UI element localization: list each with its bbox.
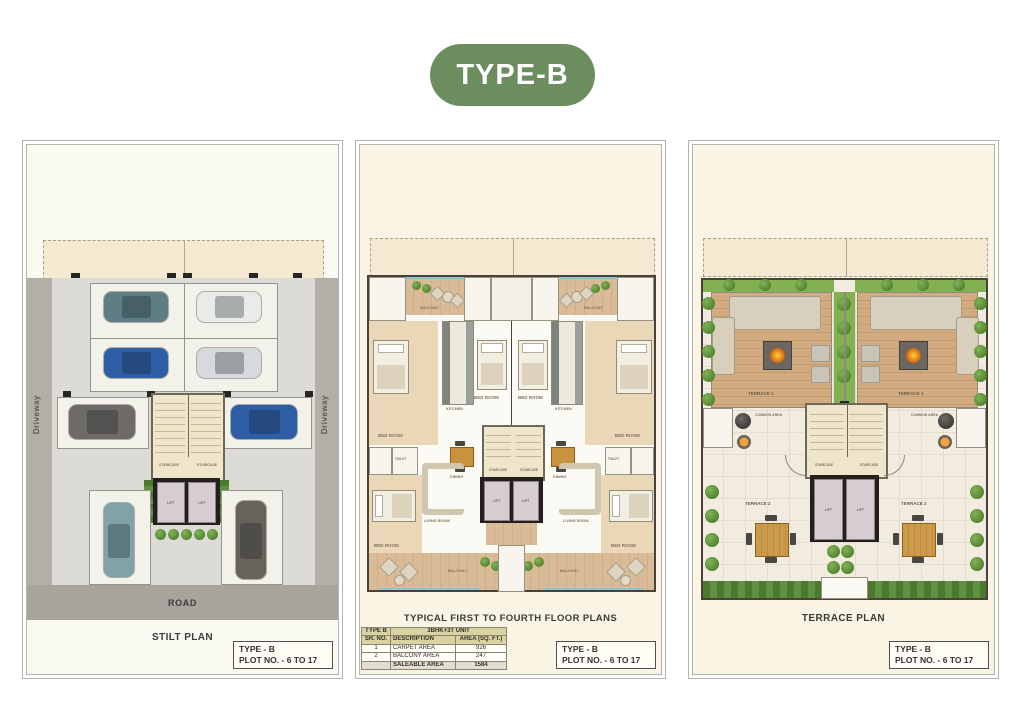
area-table-unit: 3BHK+3T UNIT [391,627,507,636]
sofa-set [422,463,464,515]
bbq-grill [735,413,751,429]
bush [702,297,715,310]
cell-sr: 2 [362,653,391,662]
table-total-row: SALEABLE AREA 1584 [362,661,507,670]
car [231,405,297,439]
common-area-label: COMMON AREA [911,413,938,417]
stair-divider [847,405,848,457]
bush [974,297,987,310]
bush [705,533,719,547]
toilet-box [605,447,631,475]
balcony-label: BALCONY [584,306,603,310]
seat-cube [811,366,830,383]
chair [937,533,943,545]
bush [168,529,179,540]
bush [705,509,719,523]
bed [609,490,653,522]
outdoor-dining-table [755,523,789,557]
area-table-type: TYPE B [362,627,391,636]
seat-cube [811,345,830,362]
bedroom-label: BED ROOM [378,433,403,438]
bush [841,561,854,574]
stair-flight [486,429,511,463]
entry-lobby [491,277,532,321]
entry-walkway [498,545,525,592]
staircase-label: STAIRCASE [815,463,833,467]
balcony-label: BALCONY [420,306,439,310]
hedge [703,581,821,598]
bush [759,279,771,291]
corner-box [703,408,733,448]
title-block-plot: PLOT NO. - 6 TO 17 [239,655,327,666]
setback-band [370,238,655,277]
bush [155,529,166,540]
col-area: AREA (SQ. FT.) [456,636,507,645]
terrace-plan-panel: TERRACE 1 TERRACE 1 [688,140,999,679]
living-label: LIVING ROOM [563,519,589,523]
kitchen [551,321,583,405]
col-desc: DESCRIPTION [391,636,456,645]
bush [702,393,715,406]
area-table-columns-row: SR. NO. DESCRIPTION AREA (SQ. FT.) [362,636,507,645]
bush [974,393,987,406]
floor-plan-sheet: BALCONY BALCONY BED ROOM BED ROOM KITCHE… [359,144,662,675]
chair [893,533,899,545]
car [197,292,261,322]
lift: LIFT [814,479,843,540]
bedroom-label: BED ROOM [611,543,636,548]
car [104,503,134,577]
car [104,348,168,378]
cell-area: 247 [456,653,507,662]
bed [518,340,548,390]
toilet-box [392,447,418,475]
sofa-set [559,463,601,515]
driveway-left-label: Driveway [32,395,41,434]
bush [702,345,715,358]
kitchen [442,321,474,405]
title-block: TYPE - B PLOT NO. - 6 TO 17 [233,641,333,669]
lift-lobby-balcony [486,523,537,545]
terrace2-label: TERRACE 2 [745,501,771,506]
column-tick [305,391,313,397]
car [69,405,135,439]
living-label: LIVING ROOM [424,519,450,523]
floor-plan-caption: TYPICAL FIRST TO FOURTH FLOOR PLANS [360,613,661,624]
road-band: ROAD [27,585,338,620]
cell-desc: BALCONY AREA [391,653,456,662]
road-label: ROAD [168,598,197,608]
bush [705,485,719,499]
title-block: TYPE - B PLOT NO. - 6 TO 17 [556,641,656,669]
bush [841,545,854,558]
bed [373,340,409,394]
corner-box [956,408,986,448]
area-table-header-row: TYPE B 3BHK+3T UNIT [362,627,507,636]
lift: LIFT [484,481,510,521]
staircase: STAIRCASE STAIRCASE [805,403,888,479]
car [104,292,168,322]
lift-block: LIFT LIFT [153,478,220,525]
bush [827,545,840,558]
title-block-type: TYPE - B [562,644,650,655]
toilet-box [617,277,654,321]
balcony-table [394,575,405,586]
toilet-box [631,447,654,475]
sofa [712,317,735,375]
car [197,348,261,378]
bed [616,340,652,394]
bush [207,529,218,540]
entry-walkway [821,577,868,599]
sofa [870,296,962,330]
column-tick [63,391,71,397]
chair [746,533,752,545]
lift: LIFT [188,482,216,523]
bath-box [464,277,491,321]
staircase: STAIRCASE STAIRCASE [151,393,225,482]
stair-flight [849,408,883,456]
bedroom-label: BED ROOM [374,543,399,548]
chair [765,515,777,521]
bush [917,279,929,291]
staircase-label: STAIRCASE [197,463,217,467]
bbq-grill [938,413,954,429]
terrace-plan-sheet: TERRACE 1 TERRACE 1 [692,144,995,675]
bed [477,340,507,390]
stair-flight [810,408,844,456]
fire-pit [899,341,928,370]
bush [974,321,987,334]
fire-bowl [737,435,751,449]
total-value: 1584 [456,661,507,670]
bath-box [532,277,559,321]
driveway-right-label: Driveway [320,395,329,434]
stair-divider [188,395,189,457]
title-block: TYPE - B PLOT NO. - 6 TO 17 [889,641,989,669]
bush [412,281,421,290]
balcony-table [620,575,631,586]
terrace2-label: TERRACE 2 [901,501,927,506]
terrace1-label: TERRACE 1 [748,391,774,396]
bed [372,490,416,522]
fire-bowl [938,435,952,449]
toilet-label: TOILET [608,457,619,461]
bush [970,485,984,499]
lift: LIFT [157,482,185,523]
bush [970,509,984,523]
staircase: STAIRCASE STAIRCASE [482,425,545,481]
hedge [868,581,986,598]
stilt-plan-panel: Driveway Driveway STAIRCASE S [22,140,343,679]
stair-flight [516,429,541,463]
bush [970,533,984,547]
toilet-box [369,447,392,475]
staircase-label: STAIRCASE [520,468,538,472]
total-label: SALEABLE AREA [391,661,456,670]
bush [974,345,987,358]
brochure-page: TYPE-B Driveway Driveway [0,0,1024,724]
type-badge: TYPE-B [430,44,595,106]
cell-desc: CARPET AREA [391,644,456,653]
stair-flight [155,397,185,455]
outdoor-dining-table [902,523,936,557]
bush [705,557,719,571]
bush [974,369,987,382]
table-row: 1 CARPET AREA 926 [362,644,507,653]
stair-flight [191,397,221,455]
floor-plan-panel: BALCONY BALCONY BED ROOM BED ROOM KITCHE… [355,140,666,679]
bush [795,279,807,291]
balcony-label: BALCONY [448,569,467,573]
bush [194,529,205,540]
lift-block: LIFT LIFT [810,475,879,542]
bedroom-label: BED ROOM [474,395,499,400]
cell-sr: 1 [362,644,391,653]
lift-block: LIFT LIFT [480,477,543,523]
car [236,501,266,579]
title-block-plot: PLOT NO. - 6 TO 17 [895,655,983,666]
staircase-label: STAIRCASE [159,463,179,467]
sofa [729,296,821,330]
bush [881,279,893,291]
col-sr: SR. NO. [362,636,391,645]
stilt-plan-sheet: Driveway Driveway STAIRCASE S [26,144,339,675]
bush [601,281,610,290]
bush [181,529,192,540]
balcony-label: BALCONY [560,569,579,573]
bush [534,557,544,567]
bush [480,557,490,567]
chair [912,557,924,563]
chair [790,533,796,545]
terrace1-label: TERRACE 1 [898,391,924,396]
seat-cube [861,345,880,362]
bush [953,279,965,291]
table-row: 2 BALCONY AREA 247 [362,653,507,662]
bush [723,279,735,291]
chair [765,557,777,563]
window-strip [380,588,480,590]
toilet-box [369,277,406,321]
bush [827,561,840,574]
title-block-plot: PLOT NO. - 6 TO 17 [562,655,650,666]
cell-sr [362,661,391,670]
setback-band [703,238,988,277]
bush [970,557,984,571]
bedroom-label: BED ROOM [615,433,640,438]
cell-area: 926 [456,644,507,653]
toilet-label: TOILET [395,457,406,461]
fire-pit [763,341,792,370]
kitchen-label: KITCHEN [555,407,572,411]
title-block-type: TYPE - B [895,644,983,655]
terrace-plan-caption: TERRACE PLAN [693,613,994,624]
lift: LIFT [513,481,539,521]
bush [702,321,715,334]
chair [556,441,566,446]
chair [912,515,924,521]
bedroom-label: BED ROOM [518,395,543,400]
lift: LIFT [846,479,875,540]
area-table: TYPE B 3BHK+3T UNIT SR. NO. DESCRIPTION … [361,627,507,671]
staircase-label: STAIRCASE [860,463,878,467]
kitchen-label: KITCHEN [446,407,463,411]
title-block-type: TYPE - B [239,644,327,655]
center-walk-line [844,292,846,408]
bush [702,369,715,382]
chair [455,441,465,446]
seat-cube [861,366,880,383]
common-area-label: COMMON AREA [755,413,782,417]
window-strip [543,588,643,590]
staircase-label: STAIRCASE [489,468,507,472]
